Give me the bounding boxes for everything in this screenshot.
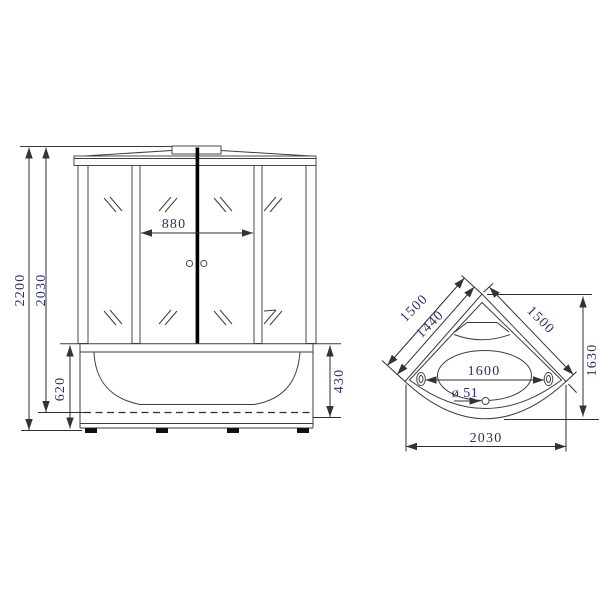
tub-jet-right	[544, 373, 553, 386]
technical-drawing-page: 2200 2030 880 620 430	[0, 0, 600, 600]
door-seam	[196, 148, 200, 344]
cabin-roof	[20, 146, 316, 166]
dim-label-apron-height: 620	[53, 377, 68, 402]
dim-label-corner-depth: 1630	[585, 344, 600, 377]
left-mullion	[132, 166, 140, 344]
tub-front	[60, 344, 341, 433]
tub-jet-left	[417, 373, 426, 386]
dim-line-1500-right	[489, 287, 573, 375]
tub-backrest	[454, 323, 510, 340]
roof-cornice	[74, 156, 316, 166]
dim-label-tub-depth: 430	[332, 369, 347, 394]
shower-cabin-drawing: 2200 2030 880 620 430	[0, 0, 600, 600]
dim-label-door-width: 880	[162, 217, 187, 232]
front-elevation-figure: 2200 2030 880 620 430	[13, 146, 347, 433]
left-post	[78, 166, 88, 344]
dim-label-right-side: 1500	[524, 304, 558, 338]
dim-label-frame-height: 2030	[34, 274, 49, 307]
front-dimensions: 2200 2030 880 620 430	[13, 148, 347, 431]
right-post	[306, 166, 316, 344]
dim-label-total-height: 2200	[13, 274, 28, 307]
dim-label-drain-diameter: ø 51	[452, 386, 479, 401]
dim-line-1440	[397, 287, 474, 375]
plan-dimensions: 1500 1440 1500 1630 1600 ø 51 2030	[387, 278, 600, 447]
right-mullion	[254, 166, 262, 344]
dim-label-overall-width: 2030	[470, 431, 503, 446]
plan-view-figure: 1500 1440 1500 1630 1600 ø 51 2030	[382, 276, 600, 452]
tub-apron-curve	[94, 352, 300, 405]
tub-feet	[85, 428, 309, 433]
tub-drain	[482, 398, 489, 405]
dim-label-inner-length: 1600	[468, 364, 501, 379]
